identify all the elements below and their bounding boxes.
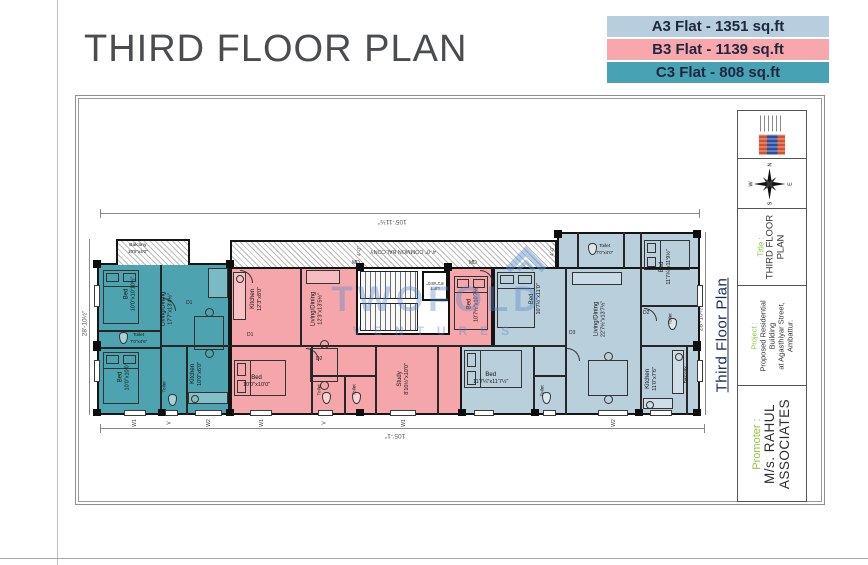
- lift-dims: 8'1"x5'0": [426, 281, 443, 286]
- room-label: Toilet: [318, 384, 324, 395]
- wall: [160, 265, 162, 415]
- room-label: Toilet: [353, 384, 359, 395]
- wall-pier: [93, 341, 101, 351]
- titleblock-project-cell: Project : Proposed Residential Building …: [738, 286, 806, 386]
- dim-line-right: [705, 232, 706, 415]
- window: [697, 360, 703, 382]
- wall: [565, 268, 567, 415]
- dining-table-icon: [588, 360, 628, 396]
- window: [543, 410, 556, 416]
- project-value-line2: at Agasthiyar Street, Ambattur.: [777, 288, 795, 384]
- wall-pier: [226, 260, 234, 268]
- room-label: Living/Dining12'3"x13'5½": [310, 292, 324, 326]
- wall: [375, 346, 377, 415]
- plan-side-label: Third Floor Plan: [714, 278, 731, 393]
- window: [195, 410, 222, 416]
- project-value-line1: Proposed Residential Building: [759, 288, 777, 384]
- wall-pier: [458, 409, 466, 416]
- room-label: Living/Dining22'7½"x13'7½": [593, 301, 607, 337]
- balcony-width-label: 4'-0": [550, 246, 556, 256]
- room-label: Bed10'7½"x11'0": [529, 283, 543, 314]
- dim-tick: [100, 424, 101, 433]
- window-label: W1: [132, 419, 138, 427]
- wall: [99, 347, 160, 349]
- wall: [640, 232, 642, 415]
- room-label: Study8'10½"x10'0": [397, 363, 411, 395]
- logo-mark-icon: [759, 134, 785, 154]
- room-label: Bed10'0"x10'10½": [123, 277, 137, 312]
- compass-e: E: [788, 181, 793, 185]
- window: [250, 410, 272, 416]
- room-label: Toilet: [163, 381, 169, 392]
- dim-bottom: 105'-1": [385, 432, 405, 439]
- wall: [99, 330, 160, 332]
- window-label: V: [322, 421, 328, 424]
- door-label: MD: [469, 260, 477, 266]
- sofa-icon: [208, 268, 228, 298]
- room-label: Bed10'7½"x10'7½": [466, 286, 480, 322]
- door-label: D3: [569, 330, 575, 336]
- room-label: Balcony10'5"x4'0": [128, 243, 148, 254]
- wall: [640, 345, 700, 347]
- compass-rose-icon: W N E S: [747, 161, 798, 207]
- wall: [344, 376, 346, 415]
- wall: [623, 232, 625, 268]
- window: [697, 285, 703, 307]
- room-label: Bed10'0"x10'0": [118, 363, 132, 390]
- wall-pier: [693, 230, 701, 238]
- common-balcony-label: 4'-0" COMMON BALCONY: [370, 248, 436, 254]
- wall: [437, 346, 439, 415]
- common-balcony: [230, 240, 557, 269]
- dim-tick: [704, 424, 705, 433]
- room-label: Kitchen12'3"x8'0": [250, 287, 264, 311]
- sofa-icon: [572, 272, 622, 285]
- dim-tick: [699, 209, 700, 218]
- wall: [231, 345, 368, 347]
- wall-pier: [356, 409, 364, 416]
- promoter-value-line1: M/s. RAHUL: [763, 389, 778, 499]
- wall: [186, 346, 188, 415]
- promoter-value-line2: ASSOCIATES: [778, 389, 793, 499]
- window-label: W2: [611, 419, 617, 427]
- stair-landing: [360, 298, 418, 304]
- project-label: Project :: [750, 288, 759, 384]
- compass-w: W: [748, 181, 754, 186]
- dining-table-icon: [194, 316, 224, 350]
- dim-line-bottom: [100, 428, 705, 429]
- window: [124, 410, 146, 416]
- kitchen-counter-icon: [233, 272, 246, 320]
- window: [94, 360, 100, 382]
- window: [474, 410, 494, 416]
- window-label: W2: [206, 419, 212, 427]
- kitchen-counter-icon: [672, 350, 684, 394]
- lift-shaft: LIFT 8'1"x5'0": [422, 271, 448, 301]
- window: [390, 410, 416, 416]
- room-label: Bed11'7¼"x11'9½": [659, 249, 673, 284]
- window: [318, 410, 333, 416]
- dim-tick: [100, 209, 101, 218]
- room-label: Kitchen11'0"x7'6": [645, 367, 659, 391]
- window-label: W1: [259, 419, 265, 427]
- wall-pier: [93, 409, 101, 416]
- titleblock-promoter-cell: Promoter : M/s. RAHUL ASSOCIATES: [738, 386, 806, 501]
- title-value-line2: PLAN: [777, 212, 788, 282]
- wall-pier: [693, 409, 701, 416]
- room-label: Living/Dining17'7"x13'4½": [160, 292, 174, 326]
- room-label: Balcony: [684, 366, 690, 383]
- room-label: Toilet: [541, 385, 547, 396]
- room-label: Bed10'0"x10'0": [243, 375, 270, 389]
- dining-table-icon: [310, 348, 338, 382]
- lift-name: LIFT: [430, 286, 439, 291]
- wall-pier: [226, 409, 234, 416]
- wall: [300, 268, 302, 346]
- window: [598, 410, 628, 416]
- wall-pier: [554, 230, 562, 238]
- wall: [533, 346, 535, 415]
- side-label-wrap: Third Floor Plan: [710, 245, 734, 425]
- wall-pier: [531, 409, 539, 416]
- dim-top: 105'-11½": [378, 218, 407, 225]
- door-label: D1: [247, 332, 253, 338]
- titleblock-logo-cell: [738, 111, 806, 159]
- titleblock-title-cell: Title : THIRD FLOOR PLAN: [738, 209, 806, 286]
- dim-left: 28'-10½": [81, 311, 88, 337]
- window: [650, 410, 672, 416]
- window-label: V: [167, 421, 173, 424]
- wall: [640, 305, 700, 307]
- door-label: D1: [186, 300, 192, 306]
- titleblock-compass-cell: W N E S: [738, 159, 806, 209]
- kitchen-counter-icon: [188, 392, 228, 404]
- compass-n: N: [767, 162, 773, 166]
- floor-plan-sheet: THIRD FLOOR PLAN A3 Flat - 1351 sq.ft B3…: [0, 0, 868, 565]
- company-logo: [759, 115, 785, 154]
- window: [165, 410, 178, 416]
- wall-pier: [93, 260, 101, 268]
- wall-pier: [444, 263, 452, 271]
- room-label: Toilet7'0"x4'6": [130, 333, 147, 344]
- dim-line-left: [89, 239, 90, 415]
- lift-label: LIFT 8'1"x5'0": [424, 273, 446, 299]
- compass-s: S: [767, 201, 773, 205]
- window: [94, 285, 100, 307]
- logo-text-lines: [760, 115, 784, 131]
- wall: [533, 375, 565, 377]
- kitchen-counter-icon: [643, 398, 673, 409]
- door-label: MD: [352, 260, 360, 266]
- wall: [462, 345, 565, 347]
- wall-pier: [635, 409, 643, 416]
- room-label: Toilet7'0"x4'0": [596, 244, 613, 255]
- title-block: W N E S Title : THIRD FLOOR PLAN Project…: [737, 110, 807, 502]
- wall-pier: [693, 341, 701, 351]
- room-label: Toilet: [669, 313, 675, 324]
- dim-line-top: [100, 213, 700, 214]
- sofa-icon: [306, 270, 340, 284]
- wall: [577, 232, 579, 268]
- balcony-width-label: 4'-0": [357, 246, 363, 256]
- window-label: W1: [401, 419, 407, 427]
- room-label: Kitchen10'0"x6'0": [190, 362, 204, 386]
- room-label: Bed11'7¼"x11'7½": [473, 372, 508, 386]
